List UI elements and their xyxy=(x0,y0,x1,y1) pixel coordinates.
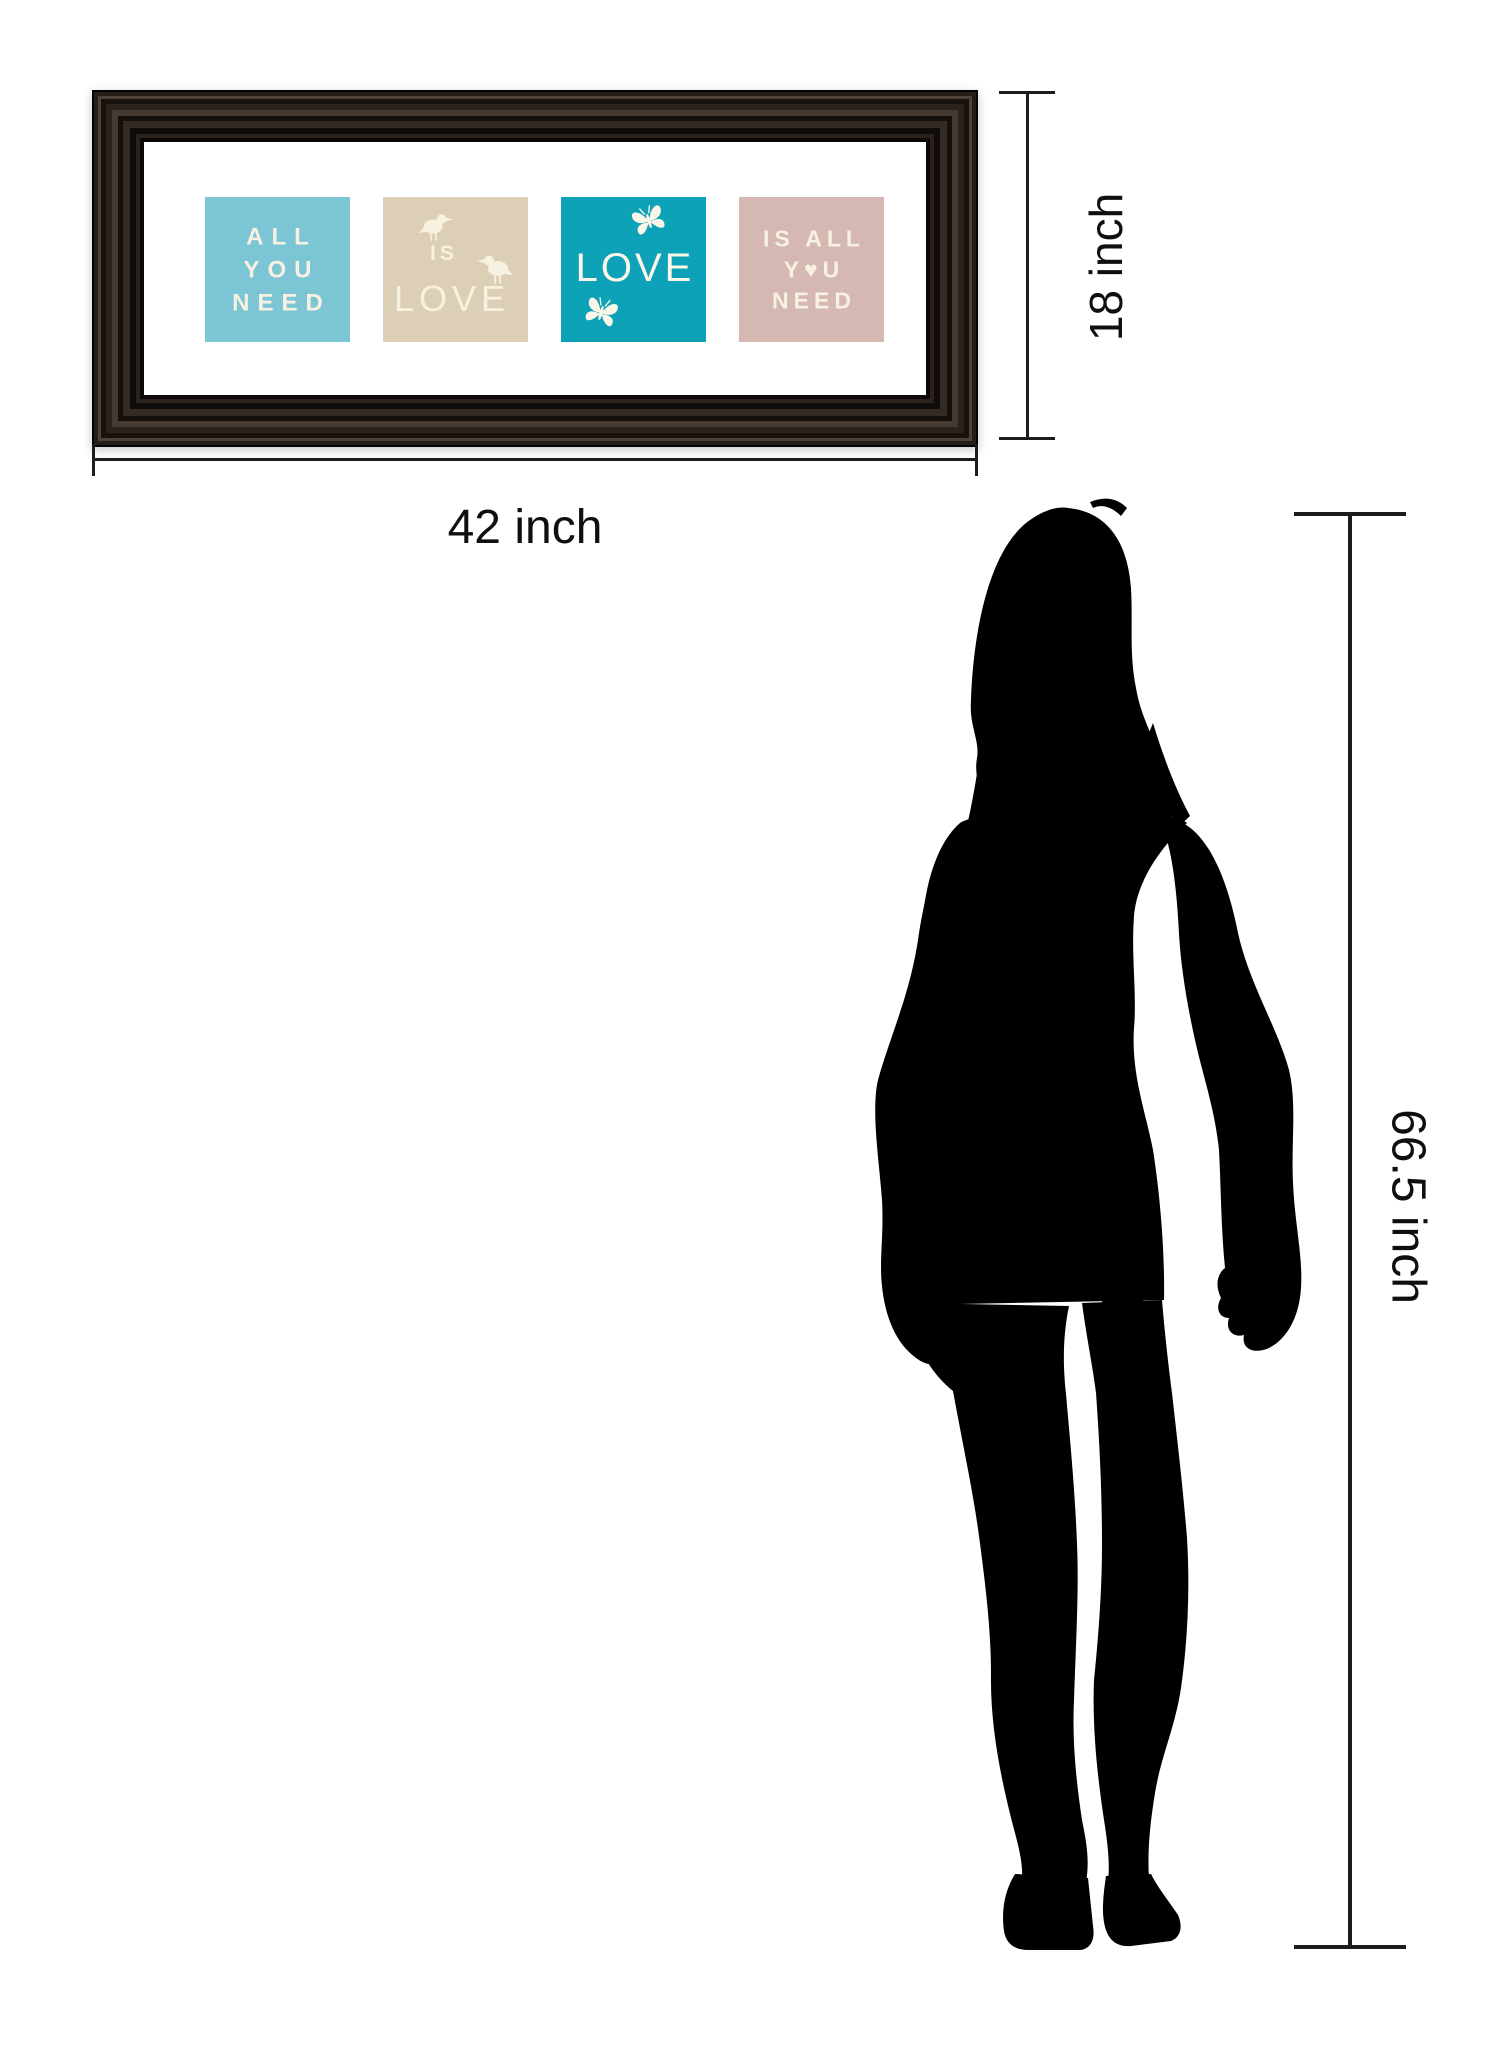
panel-line: YOU xyxy=(205,253,350,286)
person-height-dimension-line xyxy=(1348,512,1352,1949)
panel-line: IS ALL xyxy=(739,223,884,254)
art-panel-all-you-need: ALL YOU NEED xyxy=(205,197,350,342)
dimension-cap xyxy=(975,444,978,476)
panel-line: NEED xyxy=(739,285,884,316)
frame-width-label: 42 inch xyxy=(375,500,675,555)
panel-word-is: IS xyxy=(430,242,458,266)
product-size-comparison-diagram: ALL YOU NEED IS xyxy=(0,0,1500,2048)
height-dimension-line xyxy=(1026,92,1029,440)
panel-line: Y♥U xyxy=(739,254,884,285)
person-height-label: 66.5 inch xyxy=(1381,1057,1436,1357)
dimension-cap xyxy=(1294,1945,1406,1949)
framed-artwork: ALL YOU NEED IS xyxy=(92,90,978,447)
art-panel-is-all-you-need: IS ALL Y♥U NEED xyxy=(739,197,884,342)
frame-height-label: 18 inch xyxy=(1079,167,1133,367)
dimension-cap xyxy=(1294,512,1406,516)
panel-text: IS ALL Y♥U NEED xyxy=(739,223,884,316)
panel-line: NEED xyxy=(205,286,350,319)
artwork-mat: ALL YOU NEED IS xyxy=(144,142,926,395)
butterfly-icon xyxy=(579,291,624,336)
dimension-cap xyxy=(999,91,1055,94)
panel-text: ALL YOU NEED xyxy=(205,220,350,319)
art-panel-is-love: IS LOVE xyxy=(383,197,528,342)
panel-word-love: LOVE xyxy=(561,246,706,291)
dimension-cap xyxy=(999,437,1055,440)
width-dimension-line xyxy=(92,458,978,461)
bird-icon xyxy=(419,212,453,243)
butterfly-icon xyxy=(626,198,671,243)
woman-silhouette xyxy=(865,488,1310,1952)
dimension-cap xyxy=(92,444,95,476)
art-panel-love: LOVE xyxy=(561,197,706,342)
panel-line: ALL xyxy=(205,220,350,253)
panel-word-love: LOVE xyxy=(394,278,510,320)
